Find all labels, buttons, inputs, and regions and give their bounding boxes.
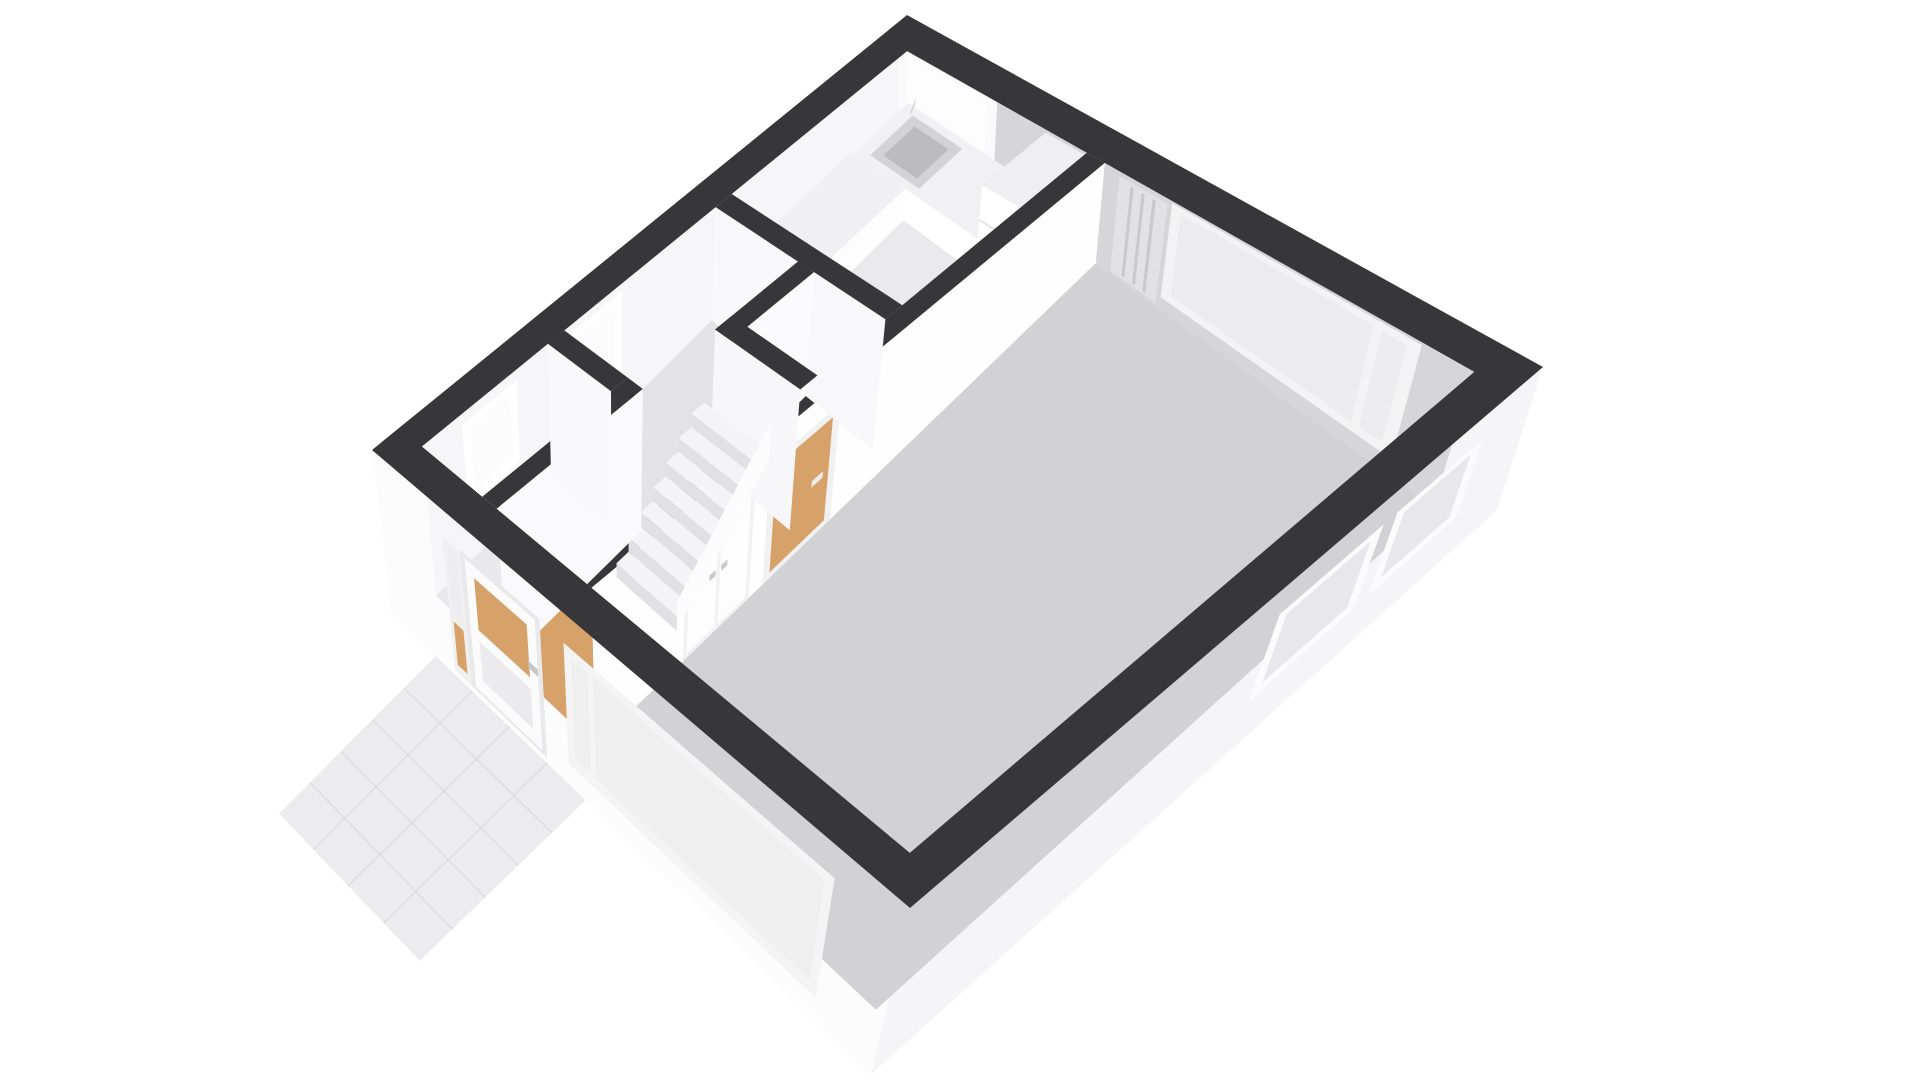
floorplan-3d-render [0,0,1920,1080]
floorplan-3d-svg [0,0,1920,1080]
